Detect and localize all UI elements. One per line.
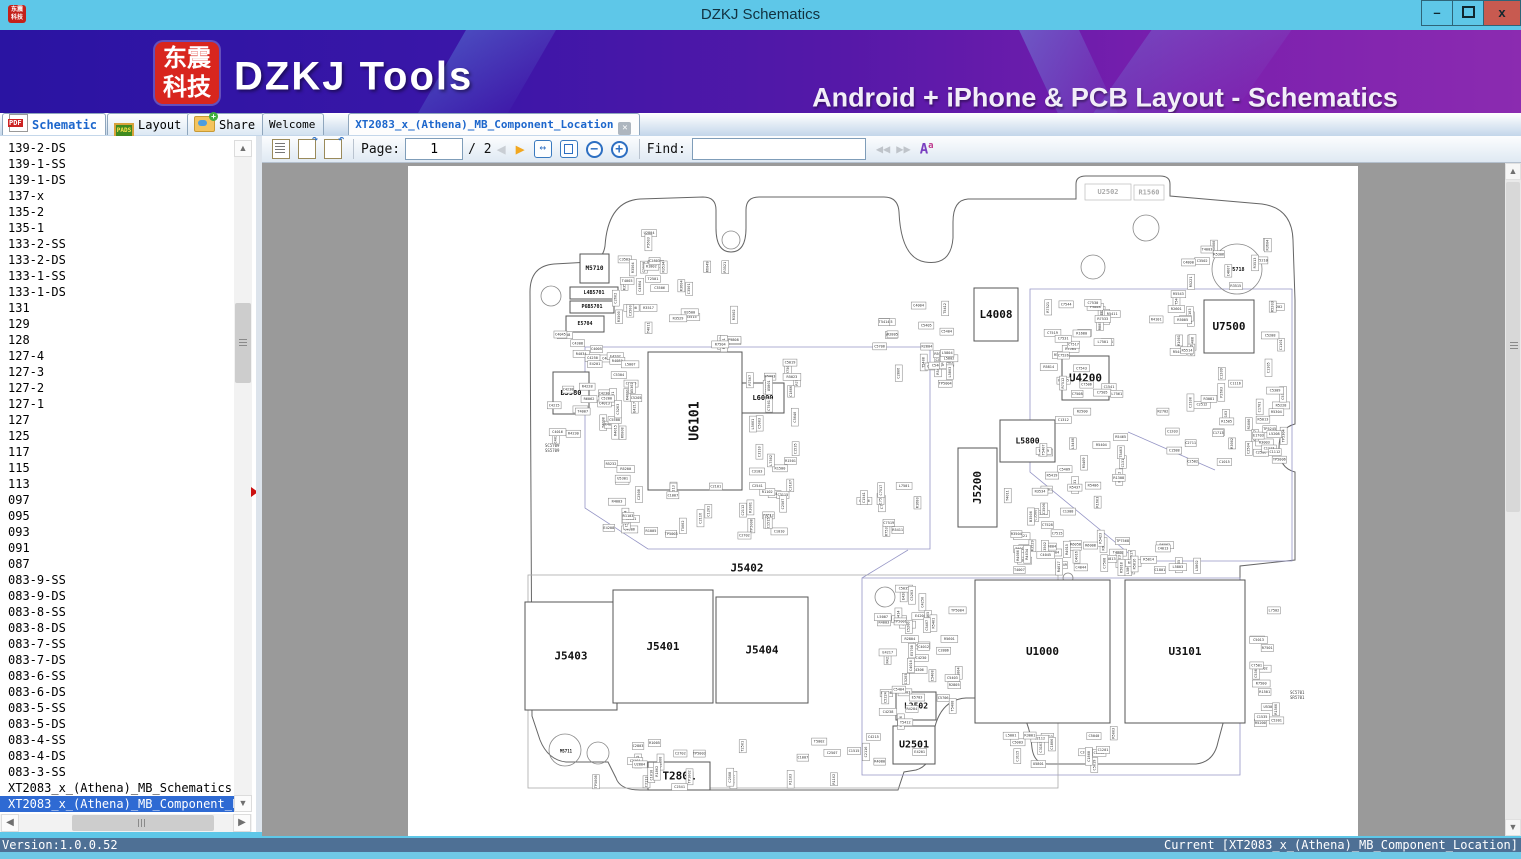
svg-text:L5804: L5804 [942,351,953,355]
pcb-small-component: R6062 [581,396,597,403]
svg-text:R5200: R5200 [1255,721,1266,725]
svg-text:C5301: C5301 [1271,718,1282,722]
svg-text:R6049: R6049 [705,261,709,272]
svg-text:E4217: E4217 [633,402,637,413]
svg-text:TP7568: TP7568 [1116,539,1129,543]
pcb-small-component: C3110 [756,444,763,459]
svg-text:R7533: R7533 [884,525,888,536]
svg-text:R4230: R4230 [568,432,579,436]
pcb-small-component: R3504 [1011,531,1022,538]
pcb-small-component: C1588 [1167,447,1182,454]
list-item[interactable]: 127-2 [0,380,234,396]
pcb-small-component: C5403 [945,675,960,682]
pcb-small-component: TP1002 [686,769,693,785]
pcb-small-component: R7501 [1261,645,1273,652]
title-bar[interactable]: 东震科技 DZKJ Schematics – x [0,0,1521,30]
doc-tab-label: Welcome [269,118,315,131]
pcb-small-component: R7507 [746,373,753,388]
svg-text:T4003: T4003 [1202,248,1213,252]
pcb-small-component: C2702 [738,532,751,539]
list-item[interactable]: 113 [0,476,234,492]
list-item[interactable]: 097 [0,492,234,508]
svg-text:C2541: C2541 [674,785,685,789]
pcb-small-component: C7508 [1071,390,1083,397]
pdf-page[interactable]: U6101L4008U7500U4200J5200J5403J5401J5404… [408,166,1358,836]
scroll-left-icon[interactable]: ◀ [1,814,19,832]
pcb-small-component: C1312 [1055,416,1071,423]
pcb-small-component: T5407 [1040,443,1047,456]
pcb-small-component: C1201 [1096,746,1109,753]
svg-text:C4012: C4012 [918,645,929,649]
pcb-small-component: R2805 [887,331,898,338]
svg-text:C2507: C2507 [781,499,785,510]
svg-text:R2702: R2702 [1158,410,1169,414]
svg-text:C4238: C4238 [563,388,574,392]
svg-text:C7544: C7544 [1061,302,1072,306]
svg-text:C5200: C5200 [601,397,612,401]
svg-text:R5437: R5437 [1069,486,1080,490]
svg-text:R6008: R6008 [1085,544,1096,548]
svg-text:L4008: L4008 [979,308,1012,321]
pcb-small-component: U5801 [1031,761,1046,768]
list-item[interactable]: 129 [0,316,234,332]
notes-icon[interactable] [272,139,290,159]
rotate-cw-icon[interactable]: ↷ [298,139,316,159]
svg-text:L5007: L5007 [625,362,636,366]
svg-text:J5401: J5401 [646,640,679,653]
header-banner: 东震科技 DZKJ Tools Android + iPhone & PCB L… [0,30,1521,113]
pcb-hole [1081,255,1105,279]
window-title: DZKJ Schematics [0,6,1521,23]
list-item[interactable]: 125 [0,428,234,444]
svg-text:T4011: T4011 [647,322,651,333]
list-item[interactable]: 083-5-SS [0,700,234,716]
svg-text:R6058: R6058 [1070,542,1081,546]
pcb-small-component: C2508 [635,486,642,502]
pcb-small-component: C1806 [788,386,795,398]
next-page-icon[interactable]: ▶ [516,140,525,158]
pcb-small-component: C7515 [1051,530,1063,537]
svg-text:C7517: C7517 [879,485,883,496]
list-item[interactable]: 135-1 [0,220,234,236]
find-next-icon[interactable]: ▶▶ [896,142,910,156]
svg-text:R3081: R3081 [1204,397,1215,401]
list-item[interactable]: 083-6-DS [0,684,234,700]
scrollbar-thumb[interactable] [235,303,251,383]
list-item[interactable]: 133-1-SS [0,268,234,284]
svg-text:T5407: T5407 [1041,444,1045,455]
svg-text:R2805: R2805 [949,683,960,687]
pcb-small-component: C5407 [923,618,930,633]
pcb-small-component: C4016 [549,429,566,436]
list-item[interactable]: 083-7-SS [0,636,234,652]
font-case-icon[interactable]: Aa [920,141,934,158]
pcb-small-component: U5801 [766,377,773,395]
sidebar-vertical-scrollbar[interactable]: ▲ ▼ [234,140,252,812]
tab-bar: PDFSchematicPADSLayout+ShareWelcomeXT208… [0,113,1521,137]
pcb-component-j5403: J5403 [525,602,617,710]
pcb-small-component: C7505 [1093,389,1111,396]
pcb-small-component: TP5003 [665,530,678,537]
pcb-small-component: R5304 [1269,409,1284,416]
pcb-small-component: R3604 [1264,238,1271,252]
pcb-small-component: R5409 [1081,456,1088,471]
svg-text:R3502: R3502 [732,309,736,320]
schematic-list: 139-2-DS139-1-SS139-1-DS137-x135-2135-11… [0,140,234,812]
svg-text:R7500: R7500 [1256,682,1267,686]
list-item[interactable]: 131 [0,300,234,316]
svg-text:C1010: C1010 [774,529,785,533]
list-item[interactable]: 083-9-SS [0,572,234,588]
svg-text:C2101: C2101 [710,485,721,489]
svg-text:R2804: R2804 [904,637,915,641]
dzkj-logo: 东震科技 [155,42,219,104]
prev-page-icon[interactable]: ◀ [497,140,506,158]
scroll-down-icon[interactable]: ▼ [234,795,252,812]
svg-text:R3504: R3504 [631,262,635,273]
svg-text:E5704: E5704 [577,321,592,327]
pcb-small-component: E1703 [1253,432,1265,439]
svg-text:C3506: C3506 [1042,503,1046,514]
pcb-small-component: C3506 [651,285,669,292]
svg-text:B3500: B3500 [1029,511,1033,522]
svg-text:U1000: U1000 [1026,645,1059,658]
pcb-small-component: U5301 [615,475,630,482]
pdf-toolbar: ↷ ↶ Page: / 2 ◀ ▶ ↔ − + Find: ◀◀ ▶▶ Aa [262,136,1521,163]
rotate-ccw-icon[interactable]: ↶ [324,139,342,159]
pcb-small-component: C5019 [783,359,797,366]
pcb-hole [1133,215,1159,241]
svg-text:R1102: R1102 [762,490,773,494]
pcb-small-component: R5005 [1174,317,1191,324]
minimize-button[interactable]: – [1421,0,1453,26]
pcb-small-component: C4238 [562,386,573,393]
pcb-small-component: C4045 [554,331,567,338]
svg-text:C1515: C1515 [849,749,860,753]
svg-text:R5401: R5401 [931,618,935,629]
pcb-small-component: T5412 [898,719,913,726]
svg-text:C4045: C4045 [1040,553,1051,557]
pcb-small-component: C5224 [882,691,889,704]
pcb-small-component: R1005 [644,527,657,534]
pcb-small-component: C3502 [1195,258,1210,265]
list-item[interactable]: 117 [0,444,234,460]
fit-page-icon[interactable] [560,140,578,158]
svg-text:R7507: R7507 [748,375,752,386]
scrollbar-thumb[interactable] [1506,182,1520,512]
list-item[interactable]: 135-2 [0,204,234,220]
pcb-small-component: U5302 [628,382,635,393]
svg-text:R5228: R5228 [1276,403,1287,407]
list-item[interactable]: 083-8-SS [0,604,234,620]
pcb-small-component: B3500 [1027,508,1034,525]
list-item[interactable]: 093 [0,524,234,540]
svg-text:R5013: R5013 [1258,418,1269,422]
pcb-small-component: C2541 [672,783,688,790]
svg-text:R1680: R1680 [1076,331,1087,335]
svg-text:C1105: C1105 [1266,362,1270,373]
pcb-small-component: R3500 [616,310,623,324]
pcb-small-component: C4230 [914,654,929,661]
pcb-small-component: C3501 [686,282,693,295]
svg-text:C5035: C5035 [899,587,910,591]
svg-text:R1102: R1102 [832,774,836,785]
svg-text:R1001: R1001 [1177,335,1181,346]
pcb-small-component: C4238 [879,708,897,715]
svg-text:TP5003: TP5003 [693,752,706,756]
scroll-up-icon[interactable]: ▲ [234,140,252,157]
svg-text:R1802: R1802 [655,766,659,777]
pcb-small-component: C1515 [847,747,860,754]
svg-text:T5412: T5412 [900,720,911,724]
svg-text:R1500: R1500 [1274,704,1278,715]
pcb-component-j5404: J5404 [716,597,808,703]
svg-text:J5200: J5200 [971,471,984,504]
svg-text:J5403: J5403 [554,650,587,663]
list-item[interactable]: 115 [0,460,234,476]
fit-width-icon[interactable]: ↔ [534,140,552,158]
tab-layout[interactable]: PADSLayout [107,113,190,135]
pcb-small-component: TP5008 [592,775,599,789]
list-item[interactable]: XT2083_x_(Athena)_MB_Component_Location [0,796,234,812]
pcb-small-component: L5007 [874,614,891,621]
pcb-small-component: L7502 [1268,607,1281,614]
pcb-small-component: C5003 [756,416,763,431]
pcb-small-component: L5803 [946,365,953,380]
doc-tab-welcome[interactable]: Welcome [262,113,324,135]
pcb-small-component: R5818 [1118,559,1125,575]
svg-text:R5814: R5814 [1043,365,1054,369]
svg-text:TP5008: TP5008 [594,775,598,788]
pcb-small-component: T5408 [949,698,956,713]
svg-text:C2702: C2702 [739,534,750,538]
page-number-input[interactable] [405,138,463,160]
svg-text:C1541: C1541 [1104,385,1115,389]
svg-text:TP1002: TP1002 [688,770,692,783]
pcb-small-component: C1808 [1085,747,1092,765]
tab-close-icon[interactable]: ✕ [618,122,631,135]
schematic-list-panel: 139-2-DS139-1-SS139-1-DS137-x135-2135-11… [0,136,256,832]
maximize-button[interactable] [1452,0,1484,26]
svg-text:C5408: C5408 [930,670,934,681]
pcb-small-component: L5001 [750,416,757,432]
svg-text:C1112: C1112 [1269,450,1280,454]
svg-text:R1505: R1505 [1221,419,1232,423]
pcb-component-j5401: J5401 [613,590,713,703]
pcb-small-component: C7544 [1059,301,1073,308]
list-item[interactable]: 091 [0,540,234,556]
svg-text:R6062: R6062 [584,397,595,401]
version-text: Version:1.0.0.52 [2,838,118,852]
pcb-small-component: R1505 [1220,418,1234,425]
list-item[interactable]: 083-3-SS [0,764,234,780]
pcb-small-component: T5002 [679,518,686,534]
svg-text:C5003: C5003 [758,418,762,429]
svg-text:C4005: C4005 [591,347,602,351]
svg-text:R1005: R1005 [646,529,657,533]
svg-text:R4284: R4284 [906,707,917,711]
svg-text:C5304: C5304 [613,373,624,377]
list-item[interactable]: 083-4-DS [0,748,234,764]
pcb-small-component: T4007 [575,408,590,415]
doc-tab-active[interactable]: XT2083_x_(Athena)_MB_Component_Location✕ [348,113,640,135]
list-item[interactable]: 127 [0,412,234,428]
close-button[interactable]: x [1483,0,1521,26]
pcb-small-component: C2806 [936,647,950,654]
list-item[interactable]: 133-2-DS [0,252,234,268]
svg-text:R5514: R5514 [1182,348,1193,352]
scroll-right-icon[interactable]: ▶ [233,814,251,832]
pcb-small-component: C1203 [1166,428,1180,435]
svg-text:C4230: C4230 [599,391,610,395]
pcb-small-component: R3001 [747,500,754,515]
svg-text:C2702: C2702 [675,752,686,756]
list-item[interactable]: 083-6-SS [0,668,234,684]
pcb-small-component: C7508 [1101,555,1108,572]
list-item[interactable]: 127-3 [0,364,234,380]
list-item[interactable]: 083-4-SS [0,732,234,748]
pcb-small-component: R5200 [617,466,635,473]
scroll-down-icon[interactable]: ▼ [1505,819,1521,836]
list-item[interactable]: 087 [0,556,234,572]
pcb-small-component: R1680 [914,497,921,509]
svg-text:R7533: R7533 [1097,317,1108,321]
svg-text:C1701: C1701 [1258,402,1262,413]
list-item[interactable]: 137-x [0,188,234,204]
svg-text:C5404: C5404 [893,688,904,692]
svg-text:U2804: U2804 [634,762,645,766]
scroll-up-icon[interactable]: ▲ [1505,163,1521,180]
list-item[interactable]: 127-4 [0,348,234,364]
svg-text:R7512: R7512 [1061,378,1065,389]
pcb-small-component: R2500 [1074,408,1091,415]
svg-text:C3110: C3110 [757,446,761,457]
svg-text:C5409: C5409 [1059,467,1070,471]
scrollbar-thumb[interactable] [72,815,214,831]
pcb-small-component: T5403 [1117,446,1124,459]
pcb-small-component: C1801 [1154,566,1165,573]
list-item[interactable]: 139-2-DS [0,140,234,156]
pcb-small-component: R5203 [1269,301,1276,312]
svg-text:C1541: C1541 [862,492,866,503]
pcb-small-component: R7521 [1045,300,1052,315]
svg-text:C2507: C2507 [827,751,838,755]
svg-text:R5818: R5818 [1119,562,1123,573]
pcb-small-component: C2100 [1187,394,1194,411]
pcb-component-e5704: E5704 [566,316,604,332]
pcb-small-component: E5703 [909,694,924,701]
svg-text:R3001: R3001 [1024,734,1035,738]
pcb-small-component: TP5001 [894,618,907,625]
list-item[interactable]: 133-1-DS [0,284,234,300]
svg-text:C1535: C1535 [794,443,798,454]
toolbar-separator [353,139,354,159]
zoom-in-icon[interactable]: + [611,141,628,158]
list-item[interactable]: 127-1 [0,396,234,412]
pcb-component-u2501: U2501 [893,726,935,764]
find-prev-icon[interactable]: ◀◀ [876,142,890,156]
pcb-small-component: C7530 [1085,299,1101,306]
svg-text:C5407: C5407 [925,620,929,631]
svg-text:T2501: T2501 [741,741,745,752]
list-item[interactable]: 083-5-DS [0,716,234,732]
list-item[interactable]: 133-2-SS [0,236,234,252]
pcb-small-component: R6008 [619,426,626,440]
svg-text:T5412: T5412 [943,303,947,314]
list-item[interactable]: 083-9-DS [0,588,234,604]
svg-text:L5800: L5800 [1015,437,1039,446]
svg-text:R3604: R3604 [679,280,683,291]
svg-text:C1101: C1101 [1279,339,1283,350]
pcb-region-boundary [862,550,908,578]
pcb-small-component: L7501 [896,482,912,489]
svg-text:C4004: C4004 [913,304,924,308]
zoom-out-icon[interactable]: − [586,141,603,158]
pcb-small-component: E4217 [879,649,896,656]
pcb-tiny-text: SR5701 [1290,695,1305,700]
pcb-small-component: R5814 [1040,364,1057,371]
pcb-small-component: C2711 [1185,440,1196,447]
svg-text:R1005: R1005 [649,741,660,745]
pcb-small-component: C1010 [771,528,787,535]
list-item[interactable]: 083-7-DS [0,652,234,668]
list-item[interactable]: 139-1-DS [0,172,234,188]
pcb-small-component: C2803 [649,257,660,264]
viewer-vertical-scrollbar[interactable]: ▲ ▼ [1505,163,1521,836]
svg-text:R3515: R3515 [1230,284,1241,288]
svg-text:R2500: R2500 [1077,410,1088,414]
svg-text:TP5001: TP5001 [894,619,907,623]
svg-text:C4230: C4230 [916,656,927,660]
pcb-small-component: R2805 [948,682,961,689]
svg-text:M5710: M5710 [585,265,603,272]
pcb-small-component: C7543 [1073,365,1089,372]
list-item[interactable]: 083-8-DS [0,620,234,636]
list-item[interactable]: 128 [0,332,234,348]
pcb-small-component: C2507 [824,749,840,756]
pcb-small-component: T4011 [1004,488,1011,503]
current-file-text: Current [XT2083_x_(Athena)_MB_Component_… [1164,838,1518,852]
tab-schematic[interactable]: PDFSchematic [2,113,106,135]
pcb-small-component: R5003 [1110,726,1117,740]
svg-text:C1308: C1308 [1063,510,1074,514]
svg-text:L7501: L7501 [1097,340,1108,344]
pcb-small-component: C1007 [797,754,809,761]
pcb-label-m5711: M5711 [560,749,573,754]
pcb-small-component: C4308 [571,340,585,347]
list-item[interactable]: 139-1-SS [0,156,234,172]
pcb-small-component: R1680 [1073,330,1090,337]
pcb-small-component: R1500 [773,465,788,472]
pdf-viewer[interactable]: U6101L4008U7500U4200J5200J5403J5401J5404… [262,163,1505,836]
pcb-small-component: C3115 [1014,749,1021,764]
sidebar-horizontal-scrollbar[interactable]: ◀ ▶ [0,814,252,832]
list-item[interactable]: 095 [0,508,234,524]
svg-text:C2803: C2803 [633,744,644,748]
pcb-small-component: C1308 [1060,508,1075,515]
svg-text:E4201: E4201 [914,750,925,754]
pcb-component-u1000: U1000 [975,580,1110,723]
tab-share[interactable]: +Share [187,113,264,135]
svg-text:R4034: R4034 [1025,549,1029,560]
svg-text:R5411: R5411 [892,528,903,532]
pcb-small-component: L5804 [940,350,953,357]
pcb-small-component: T5414 [878,319,889,326]
pcb-small-component: C7501 [766,399,773,412]
list-item[interactable]: XT2083_x_(Athena)_MB_Schematics [0,780,234,796]
find-input[interactable] [692,138,866,160]
pcb-small-component: C5208 [1261,332,1279,339]
